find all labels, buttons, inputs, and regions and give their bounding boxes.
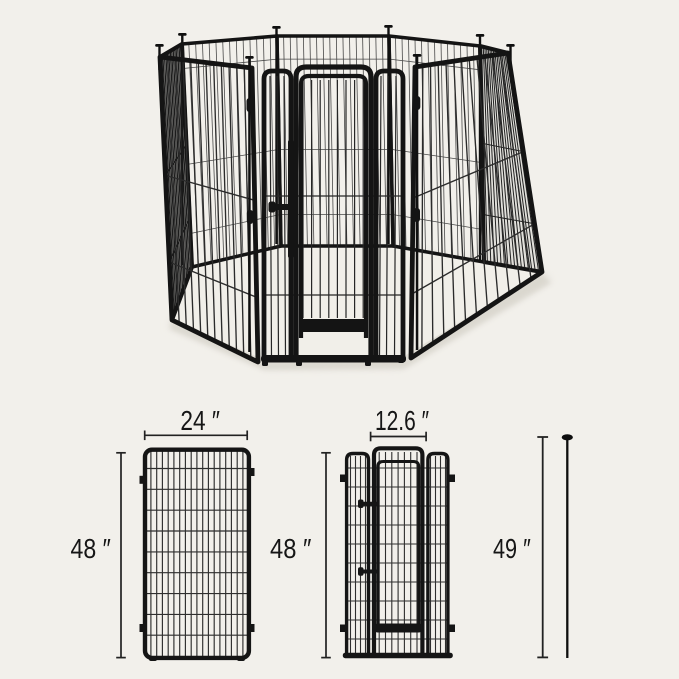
svg-text:48 ″: 48 ″ xyxy=(71,533,111,564)
svg-text:12.6 ″: 12.6 ″ xyxy=(375,405,429,436)
svg-text:48 ″: 48 ″ xyxy=(270,533,311,564)
svg-text:24 ″: 24 ″ xyxy=(180,405,220,436)
svg-text:49 ″: 49 ″ xyxy=(493,533,531,564)
